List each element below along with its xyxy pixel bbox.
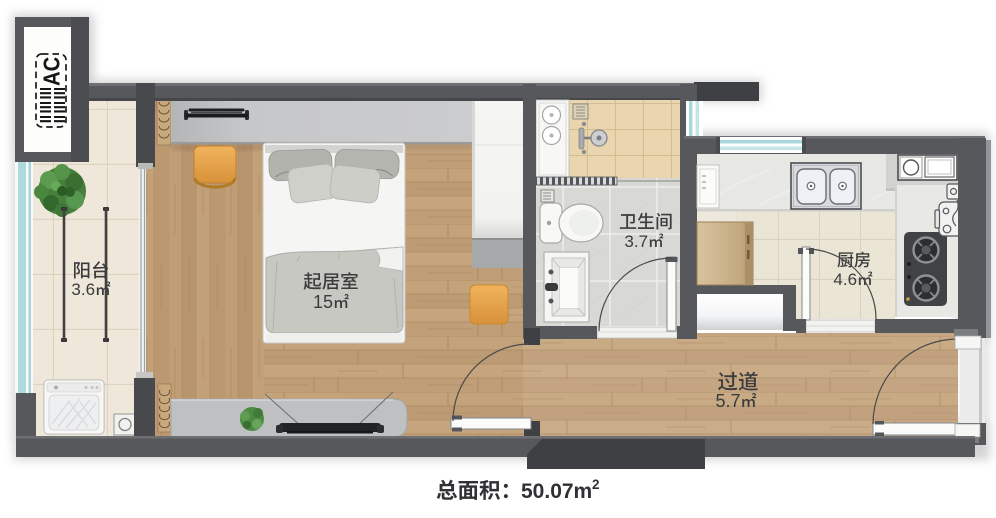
svg-text:5.7: 5.7	[716, 391, 741, 411]
svg-text:50.07m: 50.07m	[521, 480, 592, 503]
svg-text:AC: AC	[38, 56, 65, 86]
svg-text:2: 2	[592, 477, 600, 492]
svg-text:3.6: 3.6	[71, 280, 95, 299]
svg-text:15: 15	[313, 292, 333, 312]
svg-text:3.7: 3.7	[624, 232, 648, 251]
svg-text:4.6: 4.6	[833, 270, 857, 289]
